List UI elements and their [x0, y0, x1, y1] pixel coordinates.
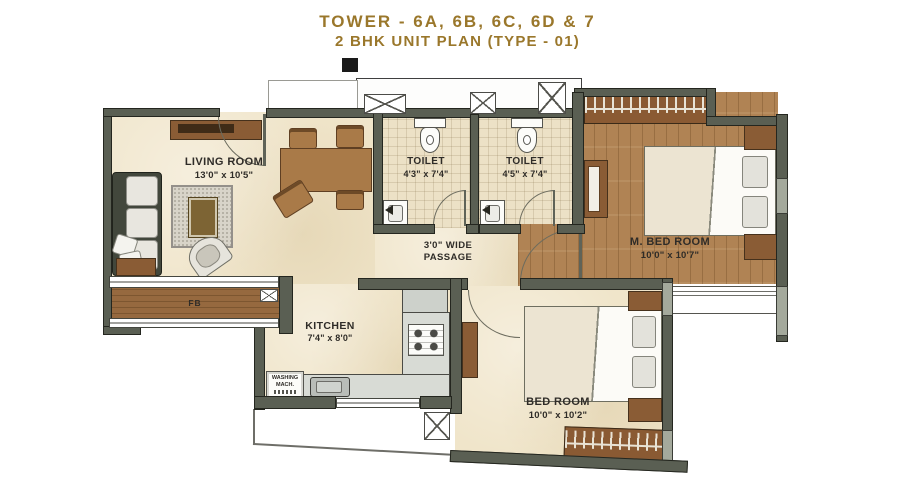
wall-kitchen-bedroom: [450, 278, 462, 414]
duct-box-2: [470, 92, 496, 114]
master-wardrobe: [584, 93, 710, 124]
toilet1-shower-icon: [385, 205, 393, 215]
toilet1-door-leaf: [464, 190, 466, 226]
master-bedroom-name: M. BED ROOM: [606, 236, 734, 250]
toilet2-dims: 4'5" x 7'4": [477, 169, 573, 180]
bedroom-pillow-2: [632, 356, 656, 388]
master-pillow-2: [742, 196, 768, 228]
toilet1-dims: 4'3" x 7'4": [381, 169, 471, 180]
fb-window-top: [109, 276, 279, 288]
bedroom-name: BED ROOM: [494, 396, 622, 410]
master-bedroom-label: M. BED ROOM 10'0" x 10'7": [606, 236, 734, 262]
dining-chair-3: [336, 190, 364, 210]
plan-subtitle-unit: 2 BHK UNIT PLAN (TYPE - 01): [15, 33, 900, 50]
bedroom-label: BED ROOM 10'0" x 10'2": [494, 396, 622, 422]
fb-duct-box: [260, 289, 278, 302]
kitchen-name: KITCHEN: [280, 320, 380, 333]
master-door-leaf: [579, 228, 582, 282]
bedroom-dims: 10'0" x 10'2": [494, 410, 622, 422]
toilet2-wc-seat: [523, 135, 531, 145]
wall-toilet2-bottom: [479, 224, 521, 234]
flower-bed-label: FB: [180, 298, 210, 309]
wall-master-top-right: [706, 116, 786, 126]
toilet2-shower-icon: [482, 205, 490, 215]
master-right-window: [776, 178, 788, 214]
ledge-line-2: [673, 295, 779, 296]
floor-plan-image: TOWER - 6A, 6B, 6C, 6D & 7 2 BHK UNIT PL…: [0, 0, 900, 500]
master-right-column: [776, 286, 788, 336]
bedroom-nightstand-bottom: [628, 398, 662, 422]
coffee-table: [188, 197, 218, 238]
kitchen-window: [336, 398, 420, 408]
toilet1-label: TOILET 4'3" x 7'4": [381, 156, 471, 180]
dining-chair-2: [336, 125, 364, 148]
wall-master-top: [574, 88, 714, 97]
passage-line1: 3'0" WIDE: [398, 240, 498, 252]
column-marker: [342, 58, 358, 72]
kitchen-platform: [402, 288, 448, 314]
dining-chair-1: [289, 128, 317, 149]
wall-kitchen-bottom-right: [420, 396, 452, 409]
toilet2-name: TOILET: [477, 156, 573, 169]
washing-machine-label-2: MACH.: [267, 382, 303, 389]
passage-line2: PASSAGE: [398, 252, 498, 264]
bedroom-right-window-top: [662, 282, 673, 316]
kitchen-dims: 7'4" x 8'0": [280, 333, 380, 344]
toilet2-door-leaf: [553, 190, 555, 226]
sofa-cushion-2: [126, 208, 158, 238]
living-room-dims: 13'0" x 10'5": [154, 170, 294, 182]
bedroom-nightstand-top: [628, 291, 662, 311]
master-nightstand-top: [744, 124, 778, 150]
toilet1-name: TOILET: [381, 156, 471, 169]
entrance-lobby: [268, 80, 358, 110]
washing-machine-label-1: WASHING: [267, 375, 303, 382]
living-room-name: LIVING ROOM: [154, 156, 294, 170]
sofa-side-table: [116, 258, 156, 276]
wall-living-top-left: [103, 108, 220, 117]
kitchen-label: KITCHEN 7'4" x 8'0": [280, 320, 380, 344]
wall-toilet2-right: [572, 92, 584, 232]
kitchen-sink-basin: [316, 381, 342, 393]
duct-box-3: [538, 82, 566, 114]
wall-kitchen-bottom-left: [254, 396, 336, 409]
wall-toilet1-bottom-stub: [466, 224, 479, 234]
bedroom-desk: [462, 322, 478, 378]
washing-machine-stripe: [274, 390, 296, 394]
wall-top-middle: [266, 108, 574, 118]
ledge-line-1: [673, 291, 779, 292]
plan-title-tower: TOWER - 6A, 6B, 6C, 6D & 7: [15, 12, 900, 32]
master-bedroom-dims: 10'0" x 10'7": [606, 250, 734, 262]
living-room-label: LIVING ROOM 13'0" x 10'5": [154, 156, 294, 182]
wall-toilet2-bottom-stub: [557, 224, 585, 234]
plot-edge-line-vert: [253, 409, 255, 445]
toilet1-wc-seat: [426, 135, 434, 145]
wall-left-outer: [103, 108, 112, 334]
master-pillow-1: [742, 156, 768, 188]
master-tv-unit-inner: [588, 166, 600, 212]
duct-box-1: [364, 94, 406, 114]
fb-window-bottom: [109, 318, 279, 328]
passage-label: 3'0" WIDE PASSAGE: [398, 240, 498, 264]
wall-bedroom-top: [520, 278, 672, 290]
gas-stove: [408, 324, 444, 356]
master-nightstand-bottom: [744, 234, 778, 260]
bedroom-duct-box: [424, 412, 450, 440]
wall-toilet1-bottom: [373, 224, 435, 234]
bedroom-pillow-1: [632, 316, 656, 348]
toilet2-label: TOILET 4'5" x 7'4": [477, 156, 573, 180]
